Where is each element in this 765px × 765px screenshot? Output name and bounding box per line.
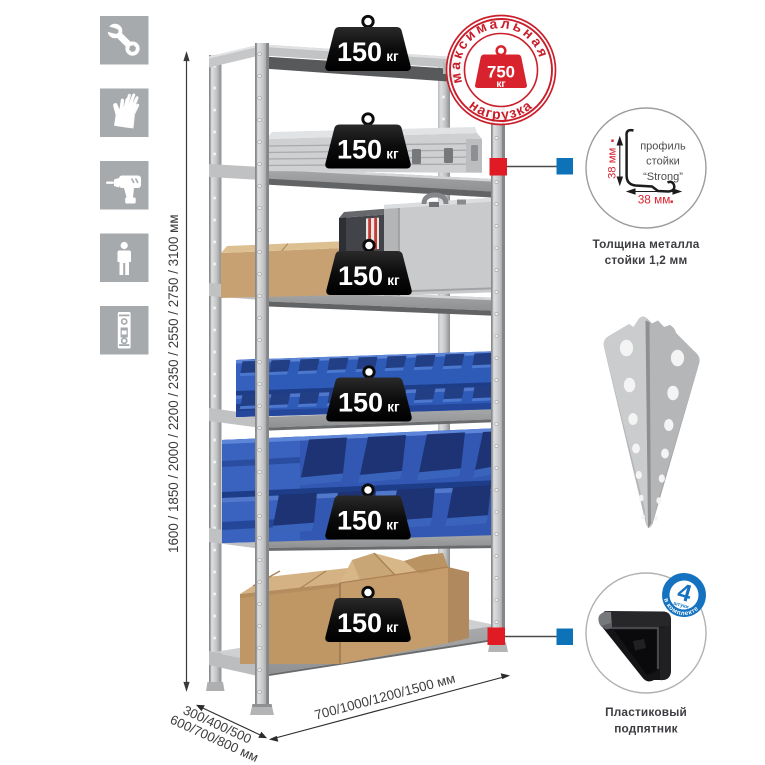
svg-text:кг: кг (386, 147, 399, 162)
svg-text:Пластиковый: Пластиковый (605, 705, 687, 719)
svg-text:150: 150 (337, 37, 382, 67)
svg-text:“Strong”: “Strong” (643, 171, 683, 183)
svg-text:150: 150 (338, 261, 383, 291)
svg-text:профиль: профиль (640, 141, 686, 153)
svg-text:150: 150 (338, 388, 383, 418)
svg-text:кг: кг (387, 273, 400, 288)
svg-text:150: 150 (337, 608, 382, 638)
svg-text:150: 150 (337, 135, 382, 165)
svg-text:38 мм: 38 мм (607, 148, 619, 179)
svg-text:кг: кг (386, 620, 399, 635)
svg-text:38 мм: 38 мм (638, 193, 671, 207)
svg-text:кг: кг (386, 518, 399, 533)
svg-text:стойки 1,2 мм: стойки 1,2 мм (605, 253, 688, 267)
svg-text:150: 150 (337, 506, 382, 536)
svg-text:стойки: стойки (646, 156, 680, 168)
svg-text:кг: кг (386, 49, 399, 64)
svg-text:кг: кг (496, 79, 505, 90)
svg-text:подпятник: подпятник (614, 722, 678, 736)
svg-text:кг: кг (387, 400, 400, 415)
svg-text:1600 / 1850 / 2000 / 2200 / 23: 1600 / 1850 / 2000 / 2200 / 2350 / 2550 … (166, 214, 181, 553)
svg-text:Толщина металла: Толщина металла (592, 237, 699, 251)
